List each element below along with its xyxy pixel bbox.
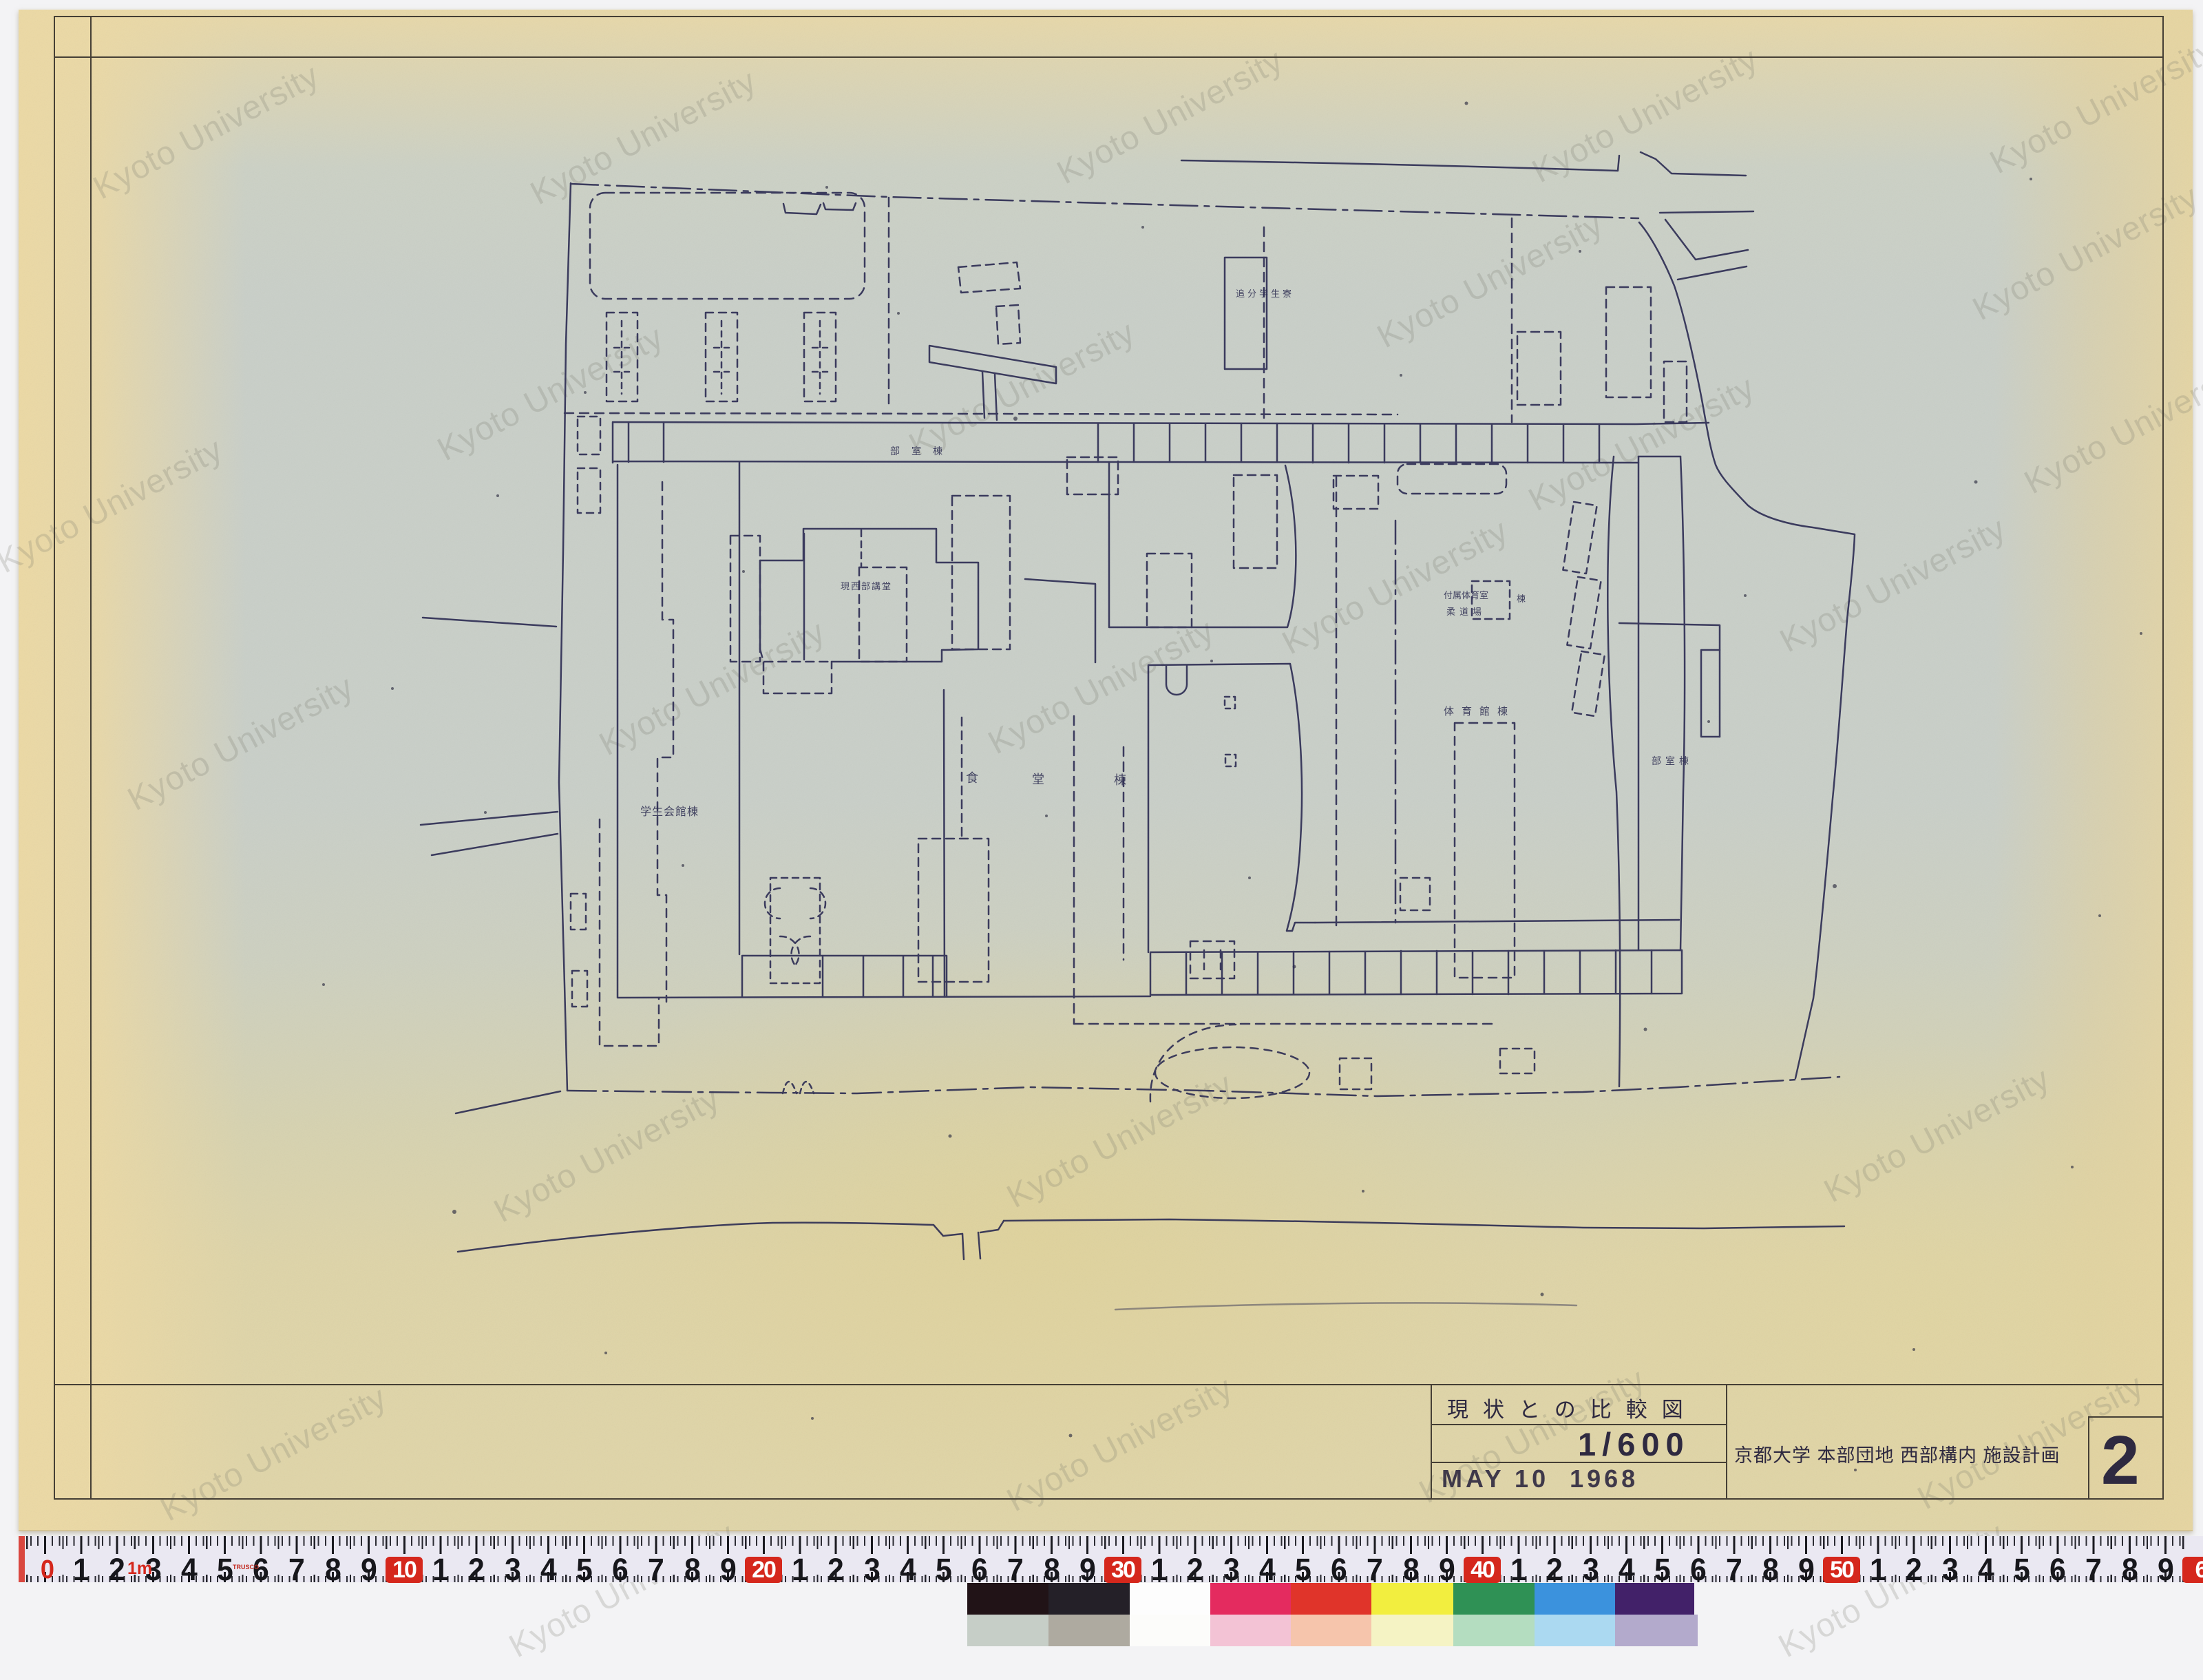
svg-text:棟: 棟 bbox=[1114, 773, 1126, 787]
svg-text:学生会館棟: 学生会館棟 bbox=[640, 806, 699, 818]
svg-text:付属体育室: 付属体育室 bbox=[1444, 590, 1488, 600]
svg-text:部室棟: 部室棟 bbox=[1652, 755, 1693, 766]
svg-text:体育館棟: 体育館棟 bbox=[1444, 706, 1515, 717]
svg-text:柔道場: 柔道場 bbox=[1446, 607, 1486, 617]
svg-text:現西部講堂: 現西部講堂 bbox=[841, 581, 892, 591]
svg-text:食: 食 bbox=[966, 771, 978, 785]
svg-text:堂: 堂 bbox=[1032, 773, 1044, 786]
svg-text:棟: 棟 bbox=[1517, 594, 1526, 604]
svg-text:追分学生寮: 追分学生寮 bbox=[1236, 288, 1294, 299]
svg-text:部室棟: 部室棟 bbox=[890, 445, 954, 456]
